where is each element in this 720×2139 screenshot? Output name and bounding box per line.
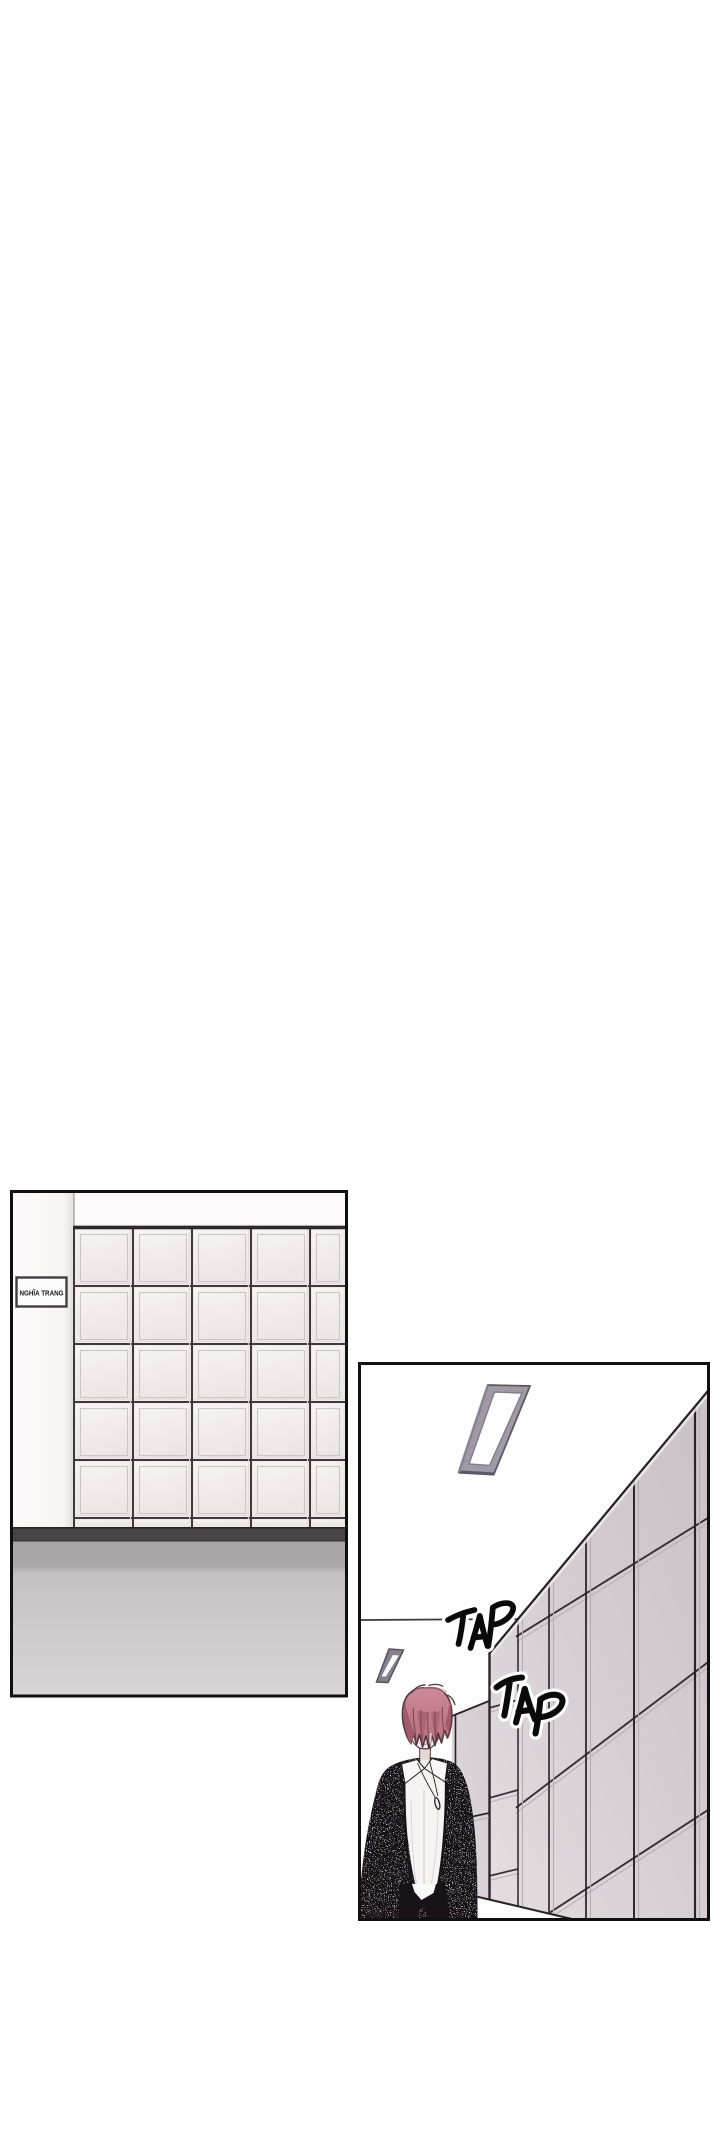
- svg-text:NGHĨA TRANG: NGHĨA TRANG: [20, 1289, 64, 1298]
